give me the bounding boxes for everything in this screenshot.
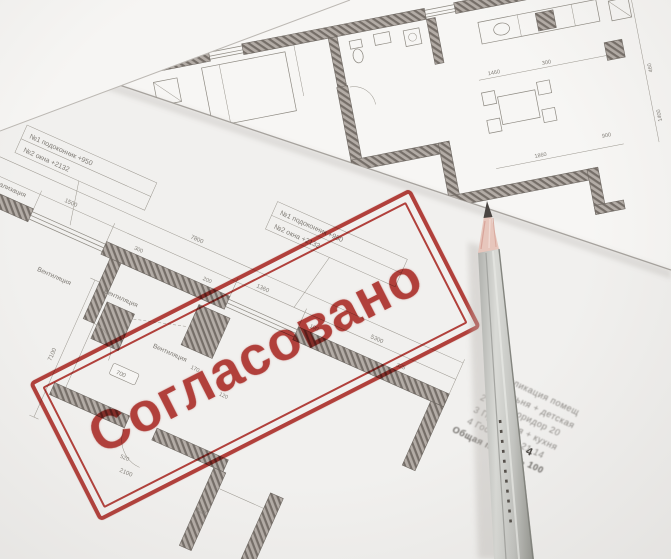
photo-floorplans-approved-stamp: { "stamp": { "text": "Согласовано", "col… [0, 0, 671, 559]
pencil [0, 0, 671, 559]
pencil-wood-streak [489, 219, 490, 248]
pencil-graphite-tip [484, 201, 493, 218]
